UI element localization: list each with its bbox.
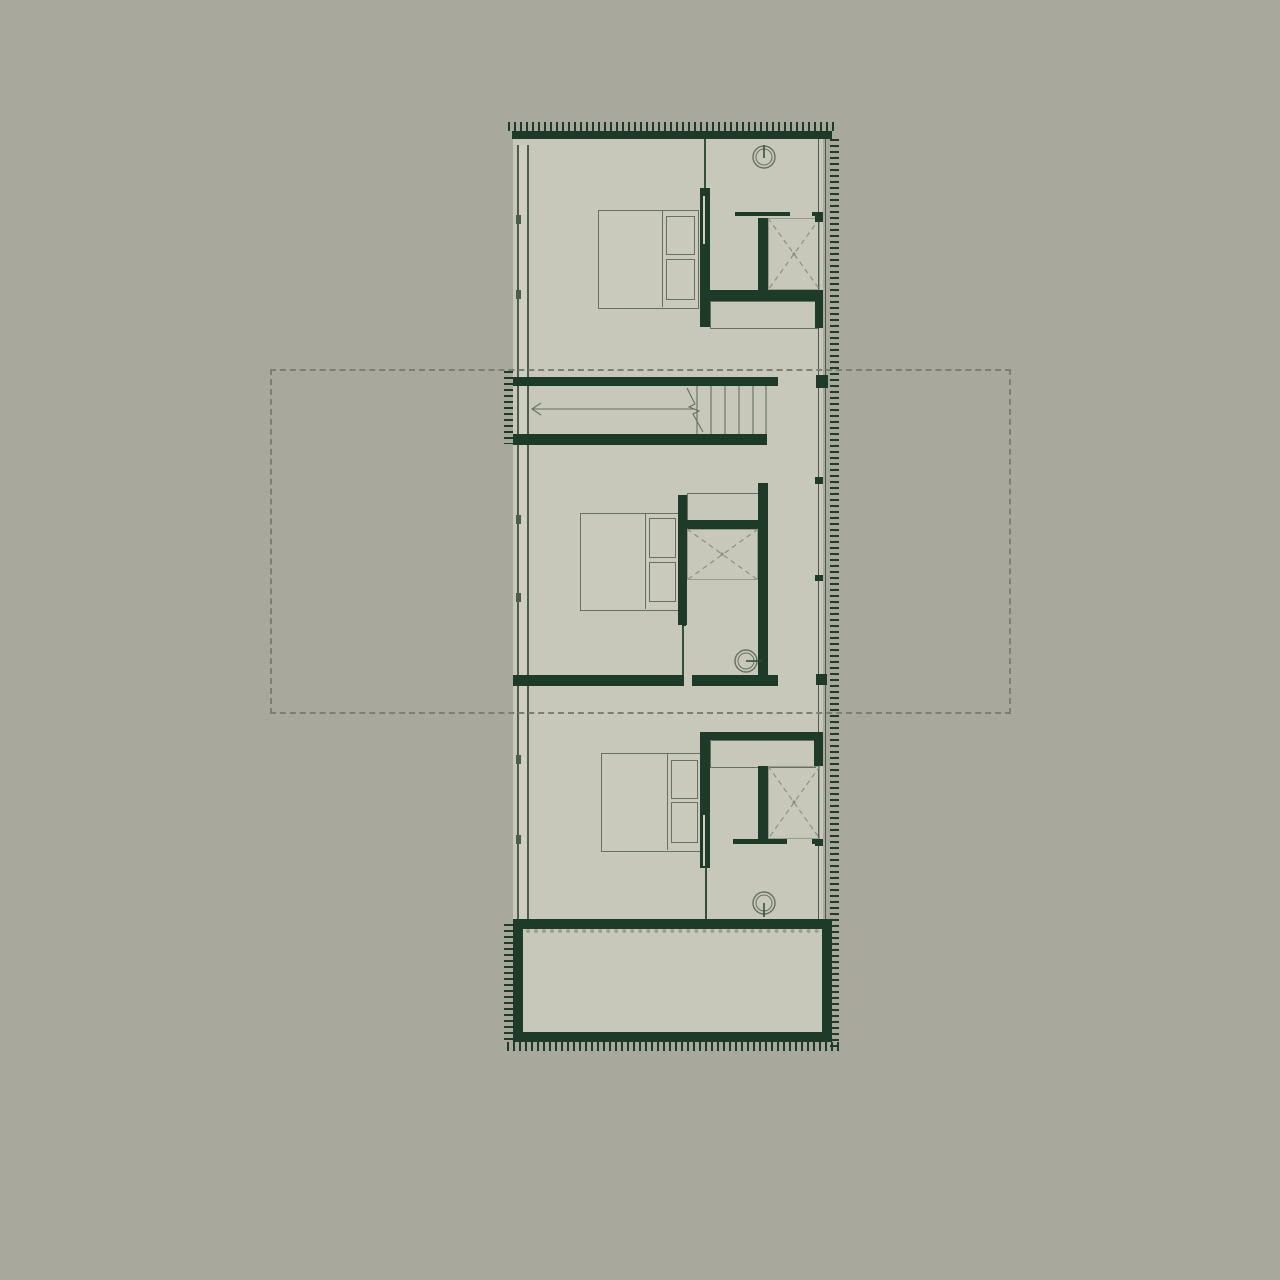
door-leaf-middle: [682, 575, 686, 626]
bed-top-divider: [662, 210, 663, 307]
bed-top-pillow-2: [666, 259, 695, 300]
insulation-hatch-west-stair: [504, 371, 513, 444]
vanity-bottom: [710, 740, 816, 768]
bed-middle-pillow-2: [649, 562, 676, 602]
closet-wall-bottom: [758, 766, 768, 841]
facade-post: [815, 841, 823, 846]
bed-middle-pillow-1: [649, 518, 676, 558]
wardrobe-x-middle: [687, 529, 758, 580]
bed-top-pillow-1: [666, 216, 695, 255]
pocket-door-leaf-bottom: [703, 815, 705, 866]
bed-middle-divider: [645, 513, 646, 609]
closet-wall-top: [758, 218, 768, 291]
floor-plan-canvas: [0, 0, 1280, 1280]
closet-shelf-middle: [687, 493, 760, 522]
facade-post: [815, 477, 823, 484]
round-fixture-top: [750, 142, 780, 172]
staircase: [513, 377, 783, 447]
partition-top: [704, 139, 706, 190]
mullion-mark: [516, 835, 521, 844]
vanity-top-end: [815, 301, 823, 328]
round-fixture-middle: [732, 647, 764, 675]
pocket-door-leaf-top: [703, 196, 705, 244]
terrace-dotted-edge: [526, 929, 819, 933]
pocket-door-wall-bottom: [700, 732, 710, 868]
insulation-hatch-north: [508, 122, 834, 131]
facade-post: [815, 575, 823, 581]
stair-landing-block: [816, 375, 828, 388]
vanity-top: [710, 301, 818, 329]
north-wall: [512, 131, 832, 139]
mid-bottom-wall-end: [816, 674, 827, 685]
insulation-hatch-east: [830, 139, 839, 1051]
round-fixture-bottom: [750, 889, 780, 919]
wardrobe-x-top: [768, 218, 820, 290]
bath-wall-top: [700, 290, 823, 301]
partition-middle: [682, 626, 684, 676]
counter-top: [735, 212, 790, 216]
bed-bottom-pillow-1: [671, 760, 698, 799]
insulation-hatch-west-terrace: [504, 924, 513, 1043]
wardrobe-x-bottom: [768, 766, 820, 839]
partition-bottom: [705, 867, 707, 920]
bed-bottom-divider: [667, 753, 668, 850]
pocket-door-wall-top: [700, 188, 710, 327]
mullion-mark: [516, 755, 521, 764]
bed-bottom-pillow-2: [671, 802, 698, 843]
mullion-mark: [516, 215, 521, 224]
facade-post: [815, 216, 823, 222]
terrace: [513, 919, 832, 1042]
mid-bottom-wall-b: [692, 675, 778, 686]
mullion-mark: [516, 290, 521, 299]
facade-post: [815, 733, 823, 740]
counter-bottom: [733, 839, 787, 844]
closet-top-wall-middle: [687, 520, 760, 529]
mid-bottom-wall-a: [513, 675, 684, 686]
insulation-hatch-south: [507, 1042, 839, 1051]
